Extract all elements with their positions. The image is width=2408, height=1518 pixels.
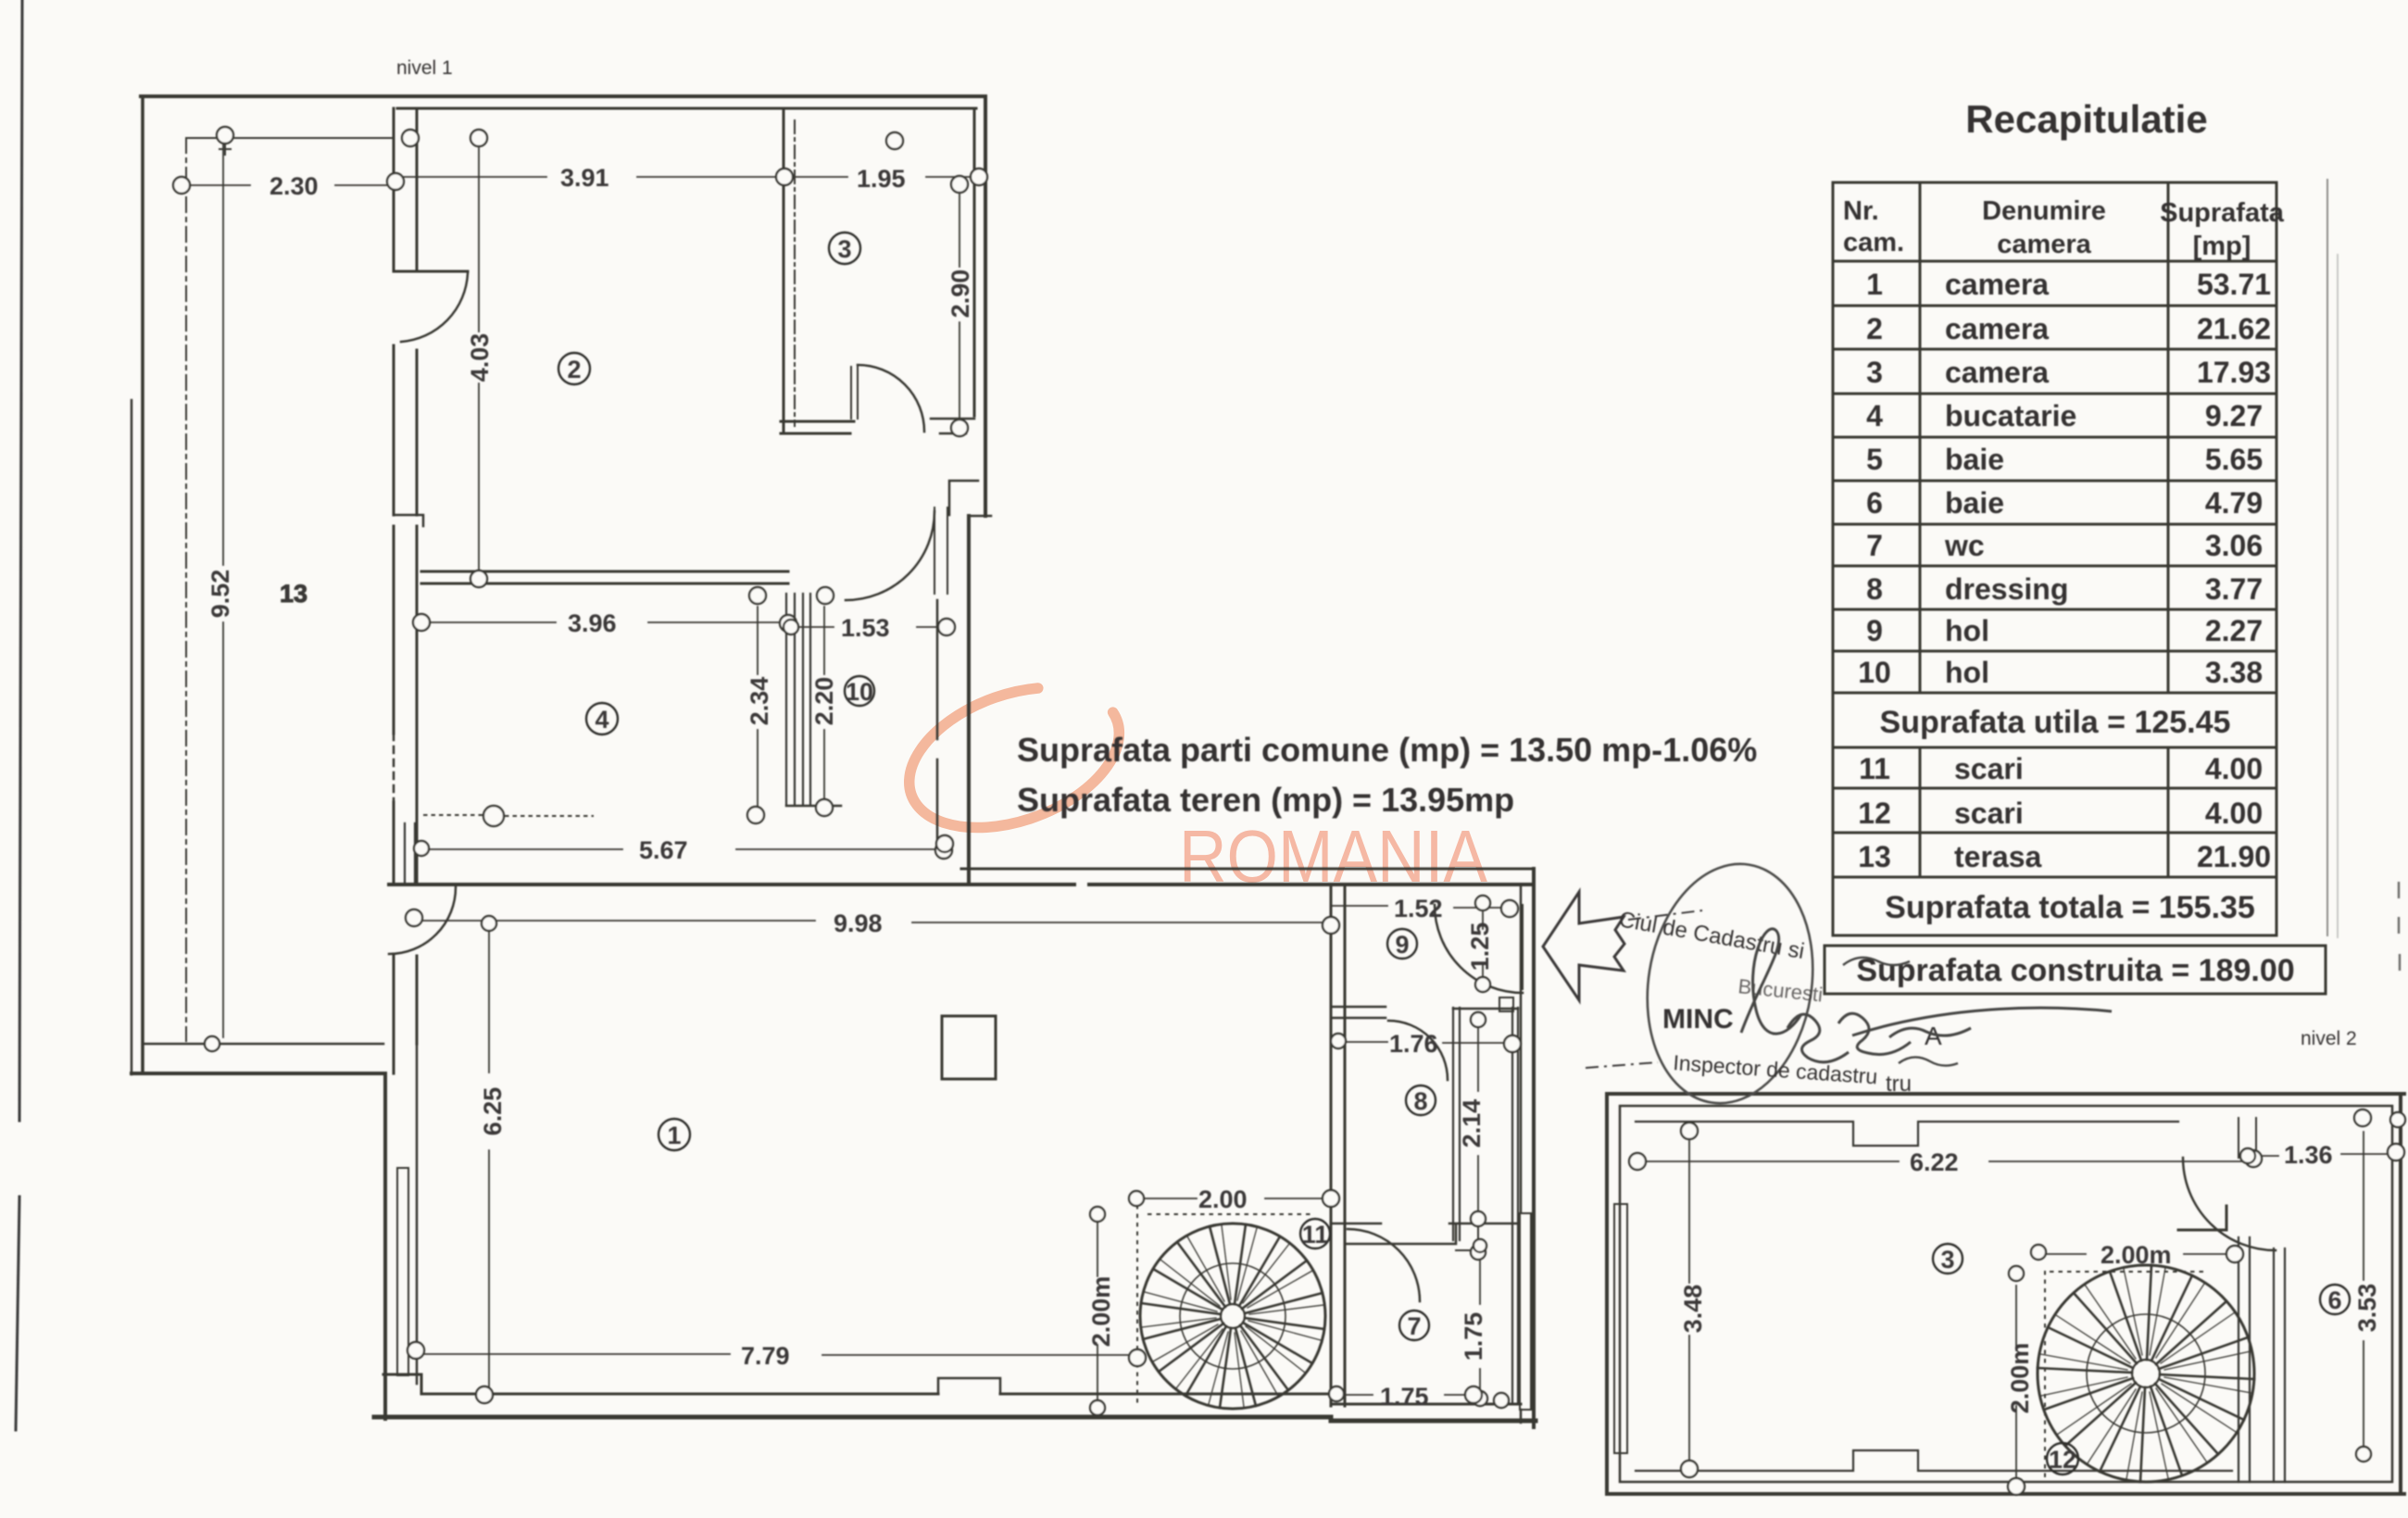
svg-text:2.20: 2.20 [810, 677, 838, 726]
svg-text:1: 1 [667, 1122, 681, 1149]
svg-text:2.00m: 2.00m [1087, 1276, 1115, 1348]
svg-text:2.00m: 2.00m [2101, 1241, 2172, 1269]
svg-text:5.67: 5.67 [639, 836, 688, 864]
svg-text:11: 11 [1859, 752, 1890, 785]
svg-text:6.22: 6.22 [1910, 1148, 1959, 1176]
svg-text:camera: camera [1997, 230, 2091, 259]
svg-text:8: 8 [1866, 572, 1883, 606]
svg-text:2.00: 2.00 [1198, 1186, 1248, 1213]
svg-text:hol: hol [1945, 656, 1989, 689]
svg-text:8: 8 [1413, 1087, 1427, 1115]
svg-text:Suprafata utila = 125.45: Suprafata utila = 125.45 [1880, 705, 2231, 740]
svg-text:Nr.: Nr. [1843, 196, 1879, 226]
svg-text:5.65: 5.65 [2205, 443, 2263, 476]
svg-text:12: 12 [2049, 1446, 2076, 1474]
svg-text:1.76: 1.76 [1389, 1030, 1438, 1058]
svg-text:2.27: 2.27 [2205, 614, 2263, 647]
svg-text:17.93: 17.93 [2197, 356, 2271, 389]
svg-text:3.38: 3.38 [2205, 656, 2263, 689]
svg-text:3.48: 3.48 [1679, 1285, 1707, 1334]
svg-text:4.79: 4.79 [2205, 486, 2263, 520]
svg-text:4.00: 4.00 [2205, 752, 2263, 785]
svg-text:4.03: 4.03 [466, 333, 494, 383]
svg-text:2: 2 [1866, 312, 1883, 345]
svg-text:baie: baie [1945, 486, 2004, 520]
svg-text:1.52: 1.52 [1394, 895, 1443, 922]
svg-text:6: 6 [2327, 1286, 2341, 1314]
svg-text:7: 7 [1866, 529, 1883, 562]
svg-text:terasa: terasa [1954, 840, 2042, 873]
svg-text:53.71: 53.71 [2197, 268, 2271, 301]
svg-text:wc: wc [1944, 529, 1985, 562]
svg-text:9.27: 9.27 [2205, 399, 2263, 433]
svg-text:camera: camera [1945, 356, 2049, 389]
svg-text:3: 3 [1866, 356, 1883, 389]
svg-text:hol: hol [1945, 614, 1989, 647]
svg-text:Suprafata: Suprafata [2160, 198, 2285, 228]
svg-text:scari: scari [1954, 797, 2024, 830]
svg-text:21.62: 21.62 [2197, 312, 2271, 345]
svg-text:9: 9 [1866, 614, 1883, 647]
svg-text:3.53: 3.53 [2353, 1284, 2381, 1333]
svg-text:Denumire: Denumire [1982, 196, 2106, 226]
svg-text:4: 4 [1866, 399, 1883, 433]
svg-text:Suprafata parti comune (mp) =: Suprafata parti comune (mp) = 13.50 mp-1… [1017, 731, 1757, 769]
svg-text:nivel 1: nivel 1 [396, 57, 453, 79]
svg-text:4: 4 [595, 706, 608, 734]
svg-text:2.30: 2.30 [270, 172, 319, 200]
svg-text:camera: camera [1945, 312, 2049, 345]
svg-text:10: 10 [846, 678, 873, 706]
svg-text:4.00: 4.00 [2205, 797, 2263, 830]
svg-text:dressing: dressing [1945, 572, 2068, 606]
svg-text:bucatarie: bucatarie [1945, 399, 2076, 433]
svg-text:13: 13 [1858, 840, 1891, 873]
svg-text:3.96: 3.96 [568, 609, 617, 637]
svg-text:9: 9 [1395, 931, 1409, 959]
svg-text:6.25: 6.25 [479, 1087, 507, 1136]
svg-text:1.25: 1.25 [1466, 922, 1494, 972]
svg-text:1: 1 [1866, 268, 1883, 301]
svg-text:Recapitulatie: Recapitulatie [1965, 97, 2207, 141]
svg-text:2: 2 [567, 356, 581, 383]
svg-text:3: 3 [837, 235, 851, 263]
svg-text:2.34: 2.34 [746, 677, 773, 726]
svg-text:MINC: MINC [1662, 1004, 1734, 1035]
svg-text:Suprafata totala = 155.35: Suprafata totala = 155.35 [1885, 890, 2255, 925]
svg-text:9.98: 9.98 [834, 910, 883, 937]
svg-text:1.53: 1.53 [841, 614, 890, 642]
svg-text:3.91: 3.91 [560, 164, 609, 192]
svg-text:3: 3 [1940, 1246, 1954, 1273]
svg-text:1.75: 1.75 [1460, 1312, 1487, 1361]
svg-text:camera: camera [1945, 268, 2049, 301]
svg-text:nivel 2: nivel 2 [2301, 1028, 2357, 1049]
svg-text:cam.: cam. [1843, 228, 1904, 257]
svg-text:baie: baie [1945, 443, 2004, 476]
svg-text:7: 7 [1407, 1312, 1421, 1340]
svg-text:2.00m: 2.00m [2006, 1343, 2034, 1414]
svg-text:21.90: 21.90 [2197, 840, 2271, 873]
svg-text:3.06: 3.06 [2205, 529, 2263, 562]
svg-text:11: 11 [1302, 1221, 1329, 1248]
svg-text:6: 6 [1866, 486, 1883, 520]
svg-text:7.79: 7.79 [741, 1342, 790, 1370]
svg-text:Suprafata teren (mp) = 13.95mp: Suprafata teren (mp) = 13.95mp [1017, 781, 1514, 819]
svg-text:1.75: 1.75 [1380, 1383, 1429, 1411]
svg-text:1.36: 1.36 [2284, 1141, 2333, 1169]
svg-text:2.90: 2.90 [947, 270, 974, 319]
svg-text:9.52: 9.52 [207, 570, 234, 619]
svg-text:5: 5 [1866, 443, 1883, 476]
svg-text:3.77: 3.77 [2205, 572, 2263, 606]
svg-text:12: 12 [1858, 797, 1891, 830]
svg-text:10: 10 [1858, 656, 1891, 689]
svg-text:[mp]: [mp] [2193, 232, 2251, 261]
svg-text:13: 13 [280, 580, 307, 608]
svg-text:scari: scari [1954, 752, 2024, 785]
svg-text:Suprafata construita = 189.00: Suprafata construita = 189.00 [1856, 953, 2294, 988]
svg-text:2.14: 2.14 [1458, 1099, 1486, 1148]
svg-text:tru: tru [1886, 1072, 1912, 1097]
svg-text:1.95: 1.95 [857, 165, 906, 193]
